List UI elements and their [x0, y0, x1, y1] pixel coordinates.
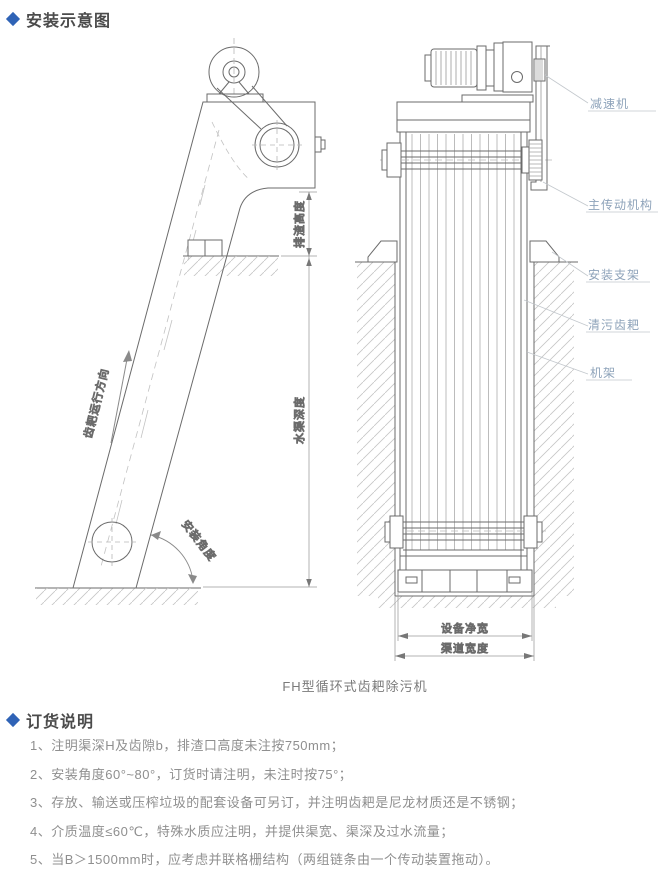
mount-bracket-label: 安装支架 [588, 267, 640, 282]
head-sprocket [252, 120, 325, 170]
platform-hatch [184, 256, 278, 276]
order-item-1: 1、注明渠深H及齿隙b，排渣口高度未注按750mm； [30, 736, 655, 756]
right-foot [530, 241, 559, 262]
order-item-4: 4、介质温度≤60℃，特殊水质应注明，并提供渠宽、渠深及过水流量； [30, 822, 655, 842]
discharge-height-label: 排渣高度 [292, 200, 306, 248]
install-section-title: 安装示意图 [8, 7, 111, 31]
order-item-5: 5、当B＞1500mm时，应考虑并联格栅结构（两组链条由一个传动装置拖动）。 [30, 850, 655, 870]
rake-direction-label: 齿耙运行方向 [81, 366, 112, 439]
head-frame-box [397, 102, 530, 132]
front-view: 设备净宽 渠道宽度 [355, 42, 578, 661]
rake-direction-arrow [111, 350, 132, 443]
screen-body-outline [73, 102, 315, 588]
order-title-text: 订货说明 [26, 708, 94, 732]
order-item-2: 2、安装角度60°~80°，订货时请注明，未注时按75°； [30, 765, 655, 785]
motor-reducer [425, 42, 545, 102]
install-angle-label: 安装角度 [179, 517, 220, 563]
reducer-label: 减速机 [590, 97, 629, 111]
equipment-width-label: 设备净宽 [441, 621, 489, 635]
screen-grid [406, 134, 522, 550]
installation-diagram: 齿耙运行方向 安装角度 排渣高度 水渠深度 [0, 30, 660, 680]
install-title-text: 安装示意图 [26, 7, 111, 31]
left-foot [368, 241, 397, 262]
base-box [398, 570, 532, 592]
diamond-icon [6, 12, 20, 26]
order-item-3: 3、存放、输送或压榨垃圾的配套设备可另订，并注明齿耙是尼龙材质还是不锈钢； [30, 793, 655, 813]
support-bracket [188, 240, 222, 256]
cleaning-rake-label: 清污齿耙 [588, 318, 640, 332]
side-view: 齿耙运行方向 安装角度 排渣高度 水渠深度 [35, 38, 325, 605]
diamond-icon [6, 713, 20, 727]
diagram-caption: FH型循环式齿耙除污机 [250, 676, 460, 695]
frame-label: 机架 [590, 366, 616, 380]
main-drive-label: 主传动机构 [588, 197, 653, 212]
ordering-instructions: 1、注明渠深H及齿隙b，排渣口高度未注按750mm； 2、安装角度60°~80°… [30, 736, 655, 879]
ground-hatch [36, 588, 198, 605]
top-pulley [207, 38, 287, 129]
channel-width-label: 渠道宽度 [441, 641, 489, 655]
channel-depth-label: 水渠深度 [292, 396, 306, 444]
order-section-title: 订货说明 [8, 708, 94, 732]
